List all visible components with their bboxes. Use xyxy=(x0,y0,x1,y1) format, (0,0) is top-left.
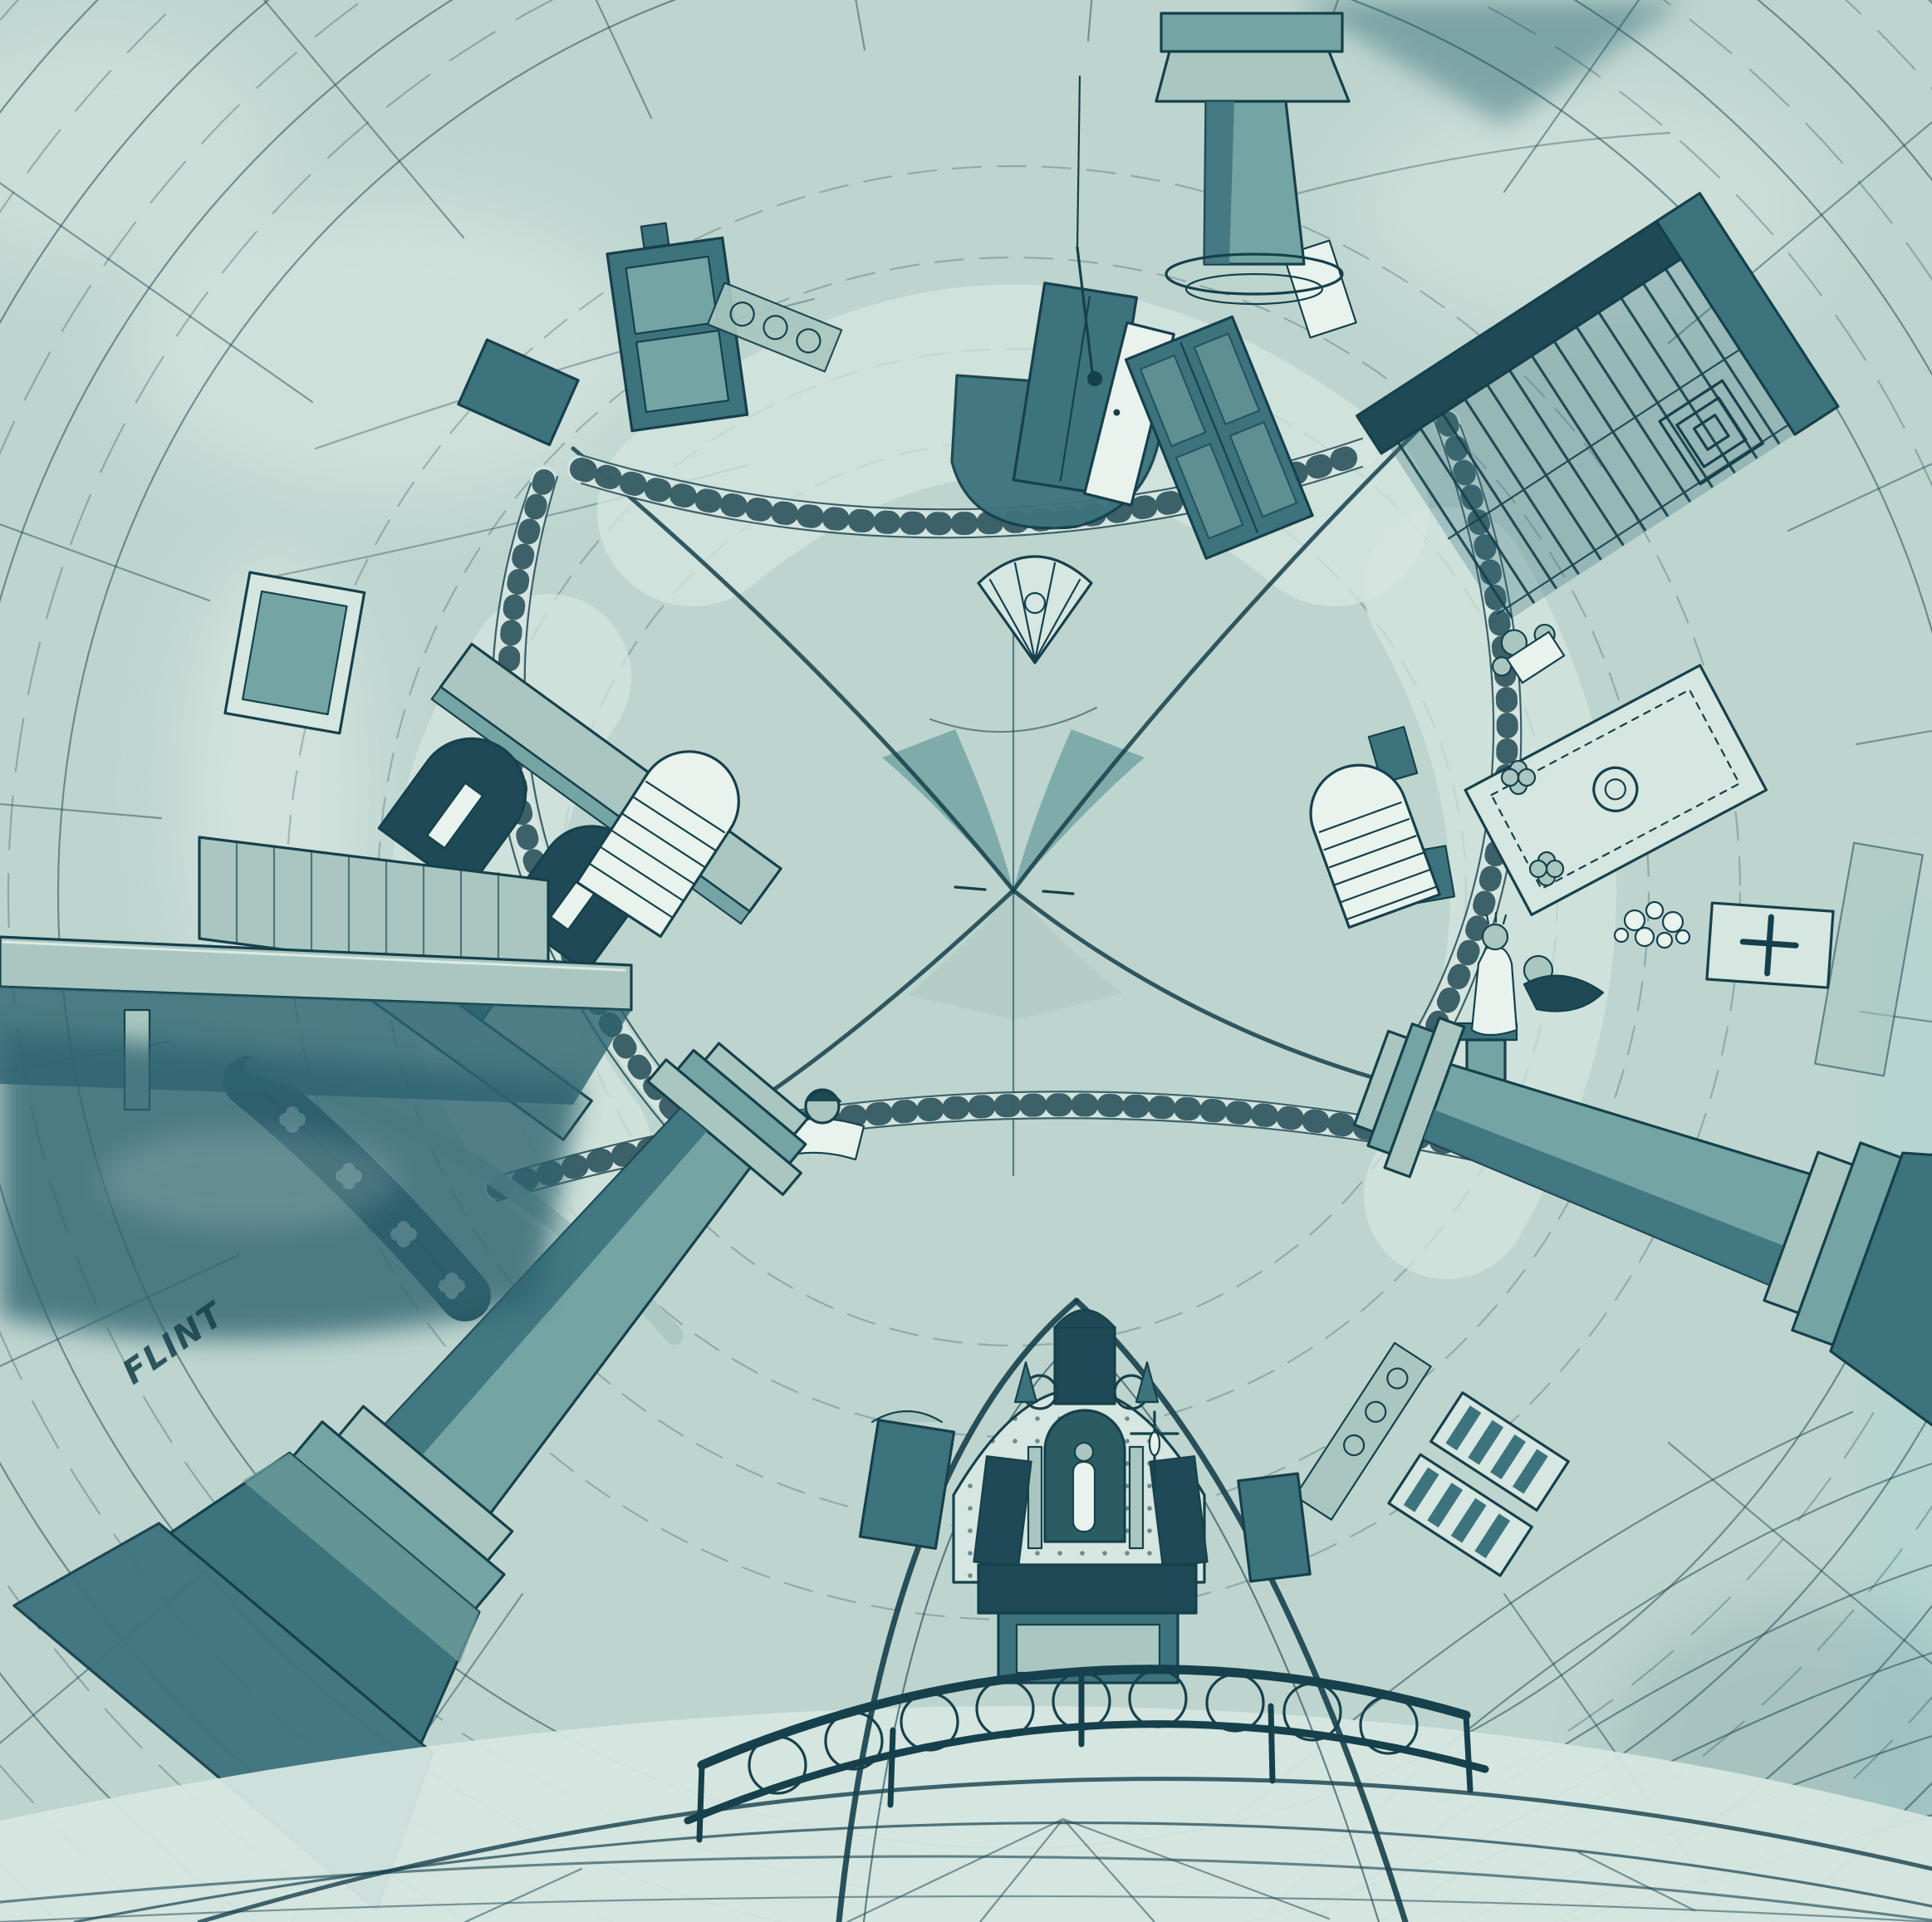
capital-abacus xyxy=(1161,13,1342,51)
statue-head xyxy=(1483,924,1508,949)
retable-crown xyxy=(1055,1327,1115,1404)
predella xyxy=(978,1565,1196,1613)
cross-panel xyxy=(1707,903,1833,988)
artwork-canvas: FLINT xyxy=(0,0,1932,1922)
lamp-finial xyxy=(1087,371,1102,386)
framed-picture xyxy=(225,572,365,733)
corpus xyxy=(1150,1432,1160,1455)
capital xyxy=(1156,51,1349,101)
shaft-shade xyxy=(1204,101,1234,264)
lectern xyxy=(1238,1473,1310,1581)
fisheye-church-drawing: FLINT xyxy=(0,0,1932,1922)
retable-pilaster xyxy=(1130,1447,1143,1548)
niche-statue xyxy=(1073,1462,1095,1532)
